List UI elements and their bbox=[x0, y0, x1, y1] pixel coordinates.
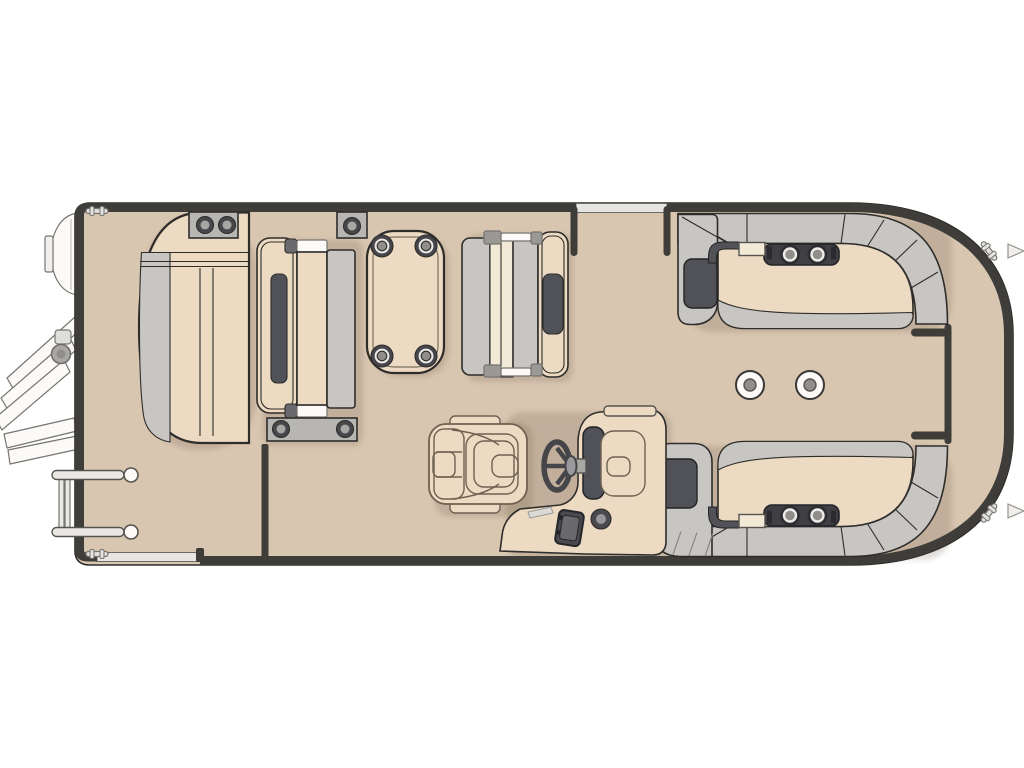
top-gate-post-right bbox=[664, 206, 671, 256]
bow-inner-fence bbox=[945, 324, 952, 444]
top-gate-sill bbox=[576, 204, 667, 213]
ladder-hinge-knob bbox=[52, 330, 72, 364]
bow-rail-stub-top bbox=[911, 329, 948, 337]
helm-divider-wall bbox=[262, 444, 269, 558]
floorplan-canvas bbox=[0, 0, 1024, 768]
pontoon-floorplan bbox=[0, 0, 1024, 768]
armrest-cupholder-console bbox=[764, 505, 839, 526]
armrest-cupholder-console bbox=[764, 244, 839, 265]
table-cupholder bbox=[371, 235, 393, 257]
motor-pod bbox=[45, 213, 78, 295]
floor-table-mount bbox=[736, 371, 764, 399]
bow-eye-top bbox=[1008, 244, 1024, 258]
table-cupholder bbox=[371, 345, 393, 367]
aft-chaise-lounge bbox=[139, 213, 249, 444]
stern-gate-sill bbox=[97, 553, 200, 562]
bow-lounge-bottom bbox=[678, 442, 948, 557]
dinette-bench-right bbox=[462, 231, 568, 377]
table-cupholder bbox=[415, 235, 437, 257]
stereo-glovebox bbox=[554, 509, 585, 547]
bow-rail-stub-bottom bbox=[911, 432, 948, 440]
console-top-ledge bbox=[604, 406, 656, 416]
top-gate-post-left bbox=[571, 206, 578, 256]
bow-lounge-top bbox=[678, 214, 948, 329]
captain-chair bbox=[429, 416, 527, 513]
fence-end-cap bbox=[196, 548, 204, 562]
console-cupholder bbox=[591, 509, 611, 529]
table-cupholder bbox=[415, 345, 437, 367]
bow-eye-bottom bbox=[1008, 504, 1024, 518]
floor-table-mount bbox=[796, 371, 824, 399]
dinette-table bbox=[367, 231, 444, 373]
